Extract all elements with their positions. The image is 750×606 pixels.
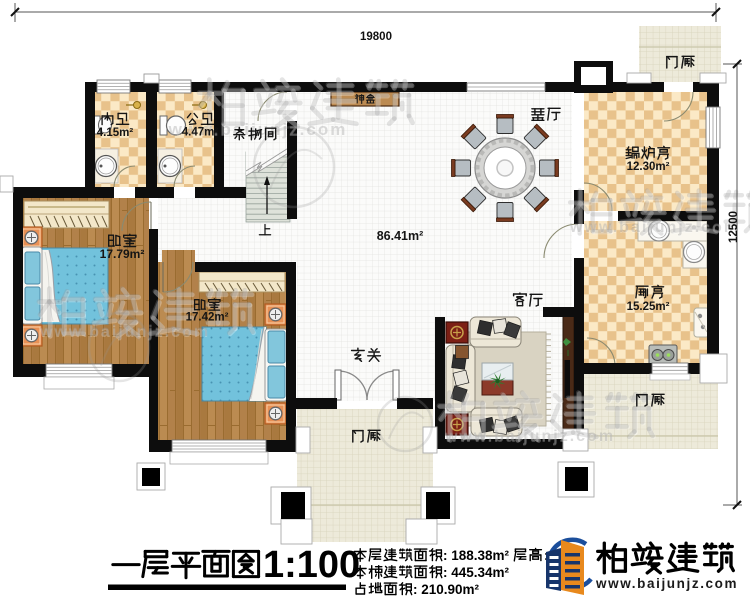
svg-text:www.baijunjz.com: www.baijunjz.com [444,428,615,445]
svg-text:17.42m²: 17.42m² [186,312,229,324]
svg-text:15.25m²: 15.25m² [627,301,670,313]
svg-text:: 445.34m²: : 445.34m² [443,565,510,580]
svg-text:12500: 12500 [728,211,740,243]
svg-text:www.baijunjz.com: www.baijunjz.com [39,323,210,340]
svg-text:www.baijunjz.com: www.baijunjz.com [595,576,738,591]
svg-text:17.79m²: 17.79m² [100,247,145,261]
svg-text:12.30m²: 12.30m² [627,161,670,173]
svg-text:www.baijunjz.com: www.baijunjz.com [569,219,740,236]
svg-text:19800: 19800 [360,31,392,43]
svg-text:1:100: 1:100 [263,544,360,586]
svg-text:4.47m²: 4.47m² [182,127,219,139]
svg-text:: 188.38m²: : 188.38m² [443,548,510,563]
svg-text:4.15m²: 4.15m² [97,127,134,139]
svg-text:: 210.90m²: : 210.90m² [413,582,480,597]
svg-text:86.41m²: 86.41m² [377,229,424,243]
